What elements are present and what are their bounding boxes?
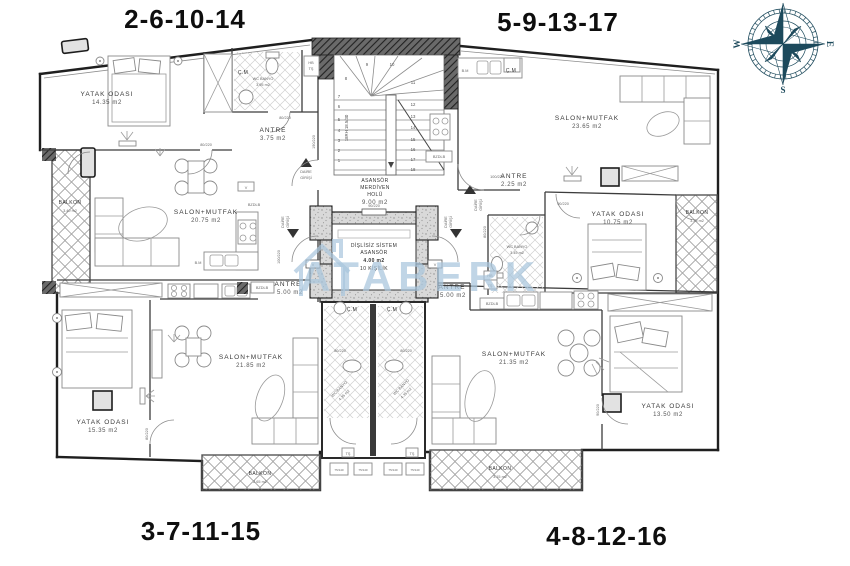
room-label: YATAK ODASI [592, 211, 645, 218]
room-label: SALON+MUTFAK [555, 115, 619, 122]
washing-machine-label: Ç.M [506, 68, 516, 74]
room-label: WC BANYO [507, 245, 528, 249]
room-area: 2.25 m2 [501, 182, 527, 188]
door-size-label: 100/220 [277, 250, 281, 264]
door-arc [150, 420, 174, 444]
room-label: BALKON [249, 471, 272, 477]
stair-spec-label: 18RH 18.5/30 [344, 114, 349, 141]
washing-machine-label: Ç.M [238, 70, 248, 76]
ac-unit-icon [601, 168, 619, 186]
stair-number: 18 [411, 167, 416, 172]
panel-label: 75/140 [388, 468, 398, 472]
floor-plan-drawing: 2-6-10-14 5-9-13-17 3-7-11-15 4-8-12-16 … [0, 0, 850, 566]
shaft-label: BZDLB [486, 302, 499, 306]
room-area: 23.65 m2 [572, 124, 602, 130]
compass-east-label: E [825, 41, 835, 47]
room-label: ANTRE [500, 173, 527, 180]
rug-icon [643, 107, 683, 141]
room-area: 13.50 m2 [653, 412, 683, 418]
stair-number: 10 [390, 62, 395, 67]
room-label: SALON+MUTFAK [219, 354, 283, 361]
entrance-arrow-icon [450, 229, 462, 238]
panel-label: 75/140 [410, 468, 420, 472]
compass-rose-icon: W E S [732, 3, 835, 95]
service-panels: 75/140 75/140 75/140 75/140 [330, 463, 424, 475]
room-area: 3.40 m2 [63, 209, 77, 213]
stair-number: 12 [411, 102, 416, 107]
title-bottom-left: 3-7-11-15 [141, 516, 261, 546]
title-bottom-right: 4-8-12-16 [546, 521, 668, 551]
wall-lamp-icon [140, 388, 155, 404]
wardrobe-icon [204, 54, 232, 112]
floor-plan-page: 2-6-10-14 5-9-13-17 3-7-11-15 4-8-12-16 … [0, 0, 850, 566]
wardrobe-icon [608, 294, 712, 311]
room-label: ANTRE [274, 281, 301, 288]
door-arc [556, 194, 580, 218]
entrance-label: GİRİŞİ [478, 199, 483, 210]
panel-label: 75/140 [358, 468, 368, 472]
washbasin-icon [334, 302, 346, 314]
room-area: 20.75 m2 [191, 218, 221, 224]
dining-set-icon [152, 326, 211, 378]
door-size-label: 80/220 [334, 349, 346, 353]
sofa-icon [95, 198, 179, 266]
washbasin-icon [526, 222, 538, 234]
shaft-label: BZDLB [433, 155, 446, 159]
shaft-label: TŞ [309, 67, 314, 71]
entrance-label: GİRİŞİ [285, 216, 290, 227]
shaft-box [237, 282, 248, 294]
shaft-box [304, 56, 319, 76]
entrance-label: DAİRE [300, 169, 312, 174]
entrance-label: DAİRE [443, 216, 448, 228]
room-area: 3.75 m2 [260, 136, 286, 142]
room-label: YATAK ODASI [81, 91, 134, 98]
entrance-label: DAİRE [473, 199, 478, 211]
room-area: 14.35 m2 [92, 100, 122, 106]
bed-icon [573, 224, 663, 290]
title-top-right: 5-9-13-17 [497, 7, 619, 37]
door-size-label: 90/220 [596, 404, 600, 416]
door-size-label: 80/220 [400, 349, 412, 353]
wall-block [42, 281, 56, 294]
room-area: 3.95 m2 [256, 83, 270, 87]
stair-number: 16 [411, 147, 416, 152]
sink-label: B.M [462, 69, 469, 73]
room-label: YATAK ODASI [642, 403, 695, 410]
room-area: 10.75 m2 [603, 220, 633, 226]
room-label: WC BANYO [253, 77, 274, 81]
vent-label: V [245, 186, 248, 190]
sofa-icon [620, 76, 710, 144]
door-arc [458, 164, 484, 190]
stair-number: 13 [411, 114, 416, 119]
washbasin-icon [239, 90, 253, 104]
watermark-text: ATABERK [300, 253, 541, 300]
door-size-label: 80/220 [483, 226, 487, 238]
room-area: 21.85 m2 [236, 363, 266, 369]
hall-area: 9.00 m2 [362, 200, 388, 206]
shaft-label: TŞ [410, 452, 415, 456]
entrance-arrow-icon [287, 229, 299, 238]
room-area: 3.15 m2 [493, 475, 507, 479]
toilet-icon [343, 360, 361, 372]
rug-icon [460, 367, 501, 424]
door-size-label: 190/220 [312, 135, 316, 149]
shared-bathrooms: TŞ TŞ Ç.M Ç.M WC BANYO 4.35 m2 WC BANYO … [322, 302, 425, 475]
door-size-label: 80/220 [145, 428, 149, 440]
toilet-icon [385, 360, 403, 372]
stair-number: 14 [411, 125, 416, 130]
wall-lamp-icon [119, 131, 136, 146]
room-area: 3.35 m2 [690, 219, 704, 223]
room-label: BALKON [59, 200, 82, 206]
stair-number: 11 [411, 80, 416, 85]
sofa-icon [432, 356, 496, 444]
room-area: 21.35 m2 [499, 360, 529, 366]
washing-machine-label: Ç.M [387, 307, 397, 313]
elevator-label: DİŞLİSİZ SİSTEM [351, 242, 397, 249]
wardrobe-icon [622, 166, 678, 181]
apartment-top-left: V YATAK ODASI 14.35 m2 ANTRE 3.75 m2 WC … [59, 38, 319, 270]
room-label: BALKON [489, 466, 512, 472]
toilet-icon [266, 52, 279, 74]
hall-label: HOLÜ [367, 191, 383, 198]
rug-icon [250, 371, 291, 425]
door-size-label: 90/220 [557, 202, 569, 206]
hall-label: MERDİVEN [360, 184, 390, 191]
hall-labels: ASANSÖR MERDİVEN HOLÜ 9.00 m2 [360, 177, 390, 206]
wardrobe-icon [60, 283, 162, 297]
door-size-label: 80/220 [279, 116, 291, 120]
room-label: ANTRE [259, 127, 286, 134]
shaft-label: TŞ [346, 452, 351, 456]
room-label: BALKON [686, 210, 709, 216]
stair-number: 17 [411, 157, 416, 162]
washing-machine-label: Ç.M [347, 307, 357, 313]
title-top-left: 2-6-10-14 [124, 4, 246, 34]
bed-icon [53, 310, 133, 388]
stair-number: 15 [411, 137, 416, 142]
ac-unit-icon [93, 391, 112, 410]
washbasin-icon [400, 302, 412, 314]
entrance-label: GİRİŞİ [300, 175, 311, 180]
wall-lamp-icon [564, 166, 581, 181]
panel-label: 75/140 [334, 468, 344, 472]
door-size-label: 80/220 [200, 143, 212, 147]
bed-icon [610, 316, 682, 392]
room-area: 15.35 m2 [88, 428, 118, 434]
room-area: 2.65 m2 [253, 480, 267, 484]
door-size-label: 100/220 [490, 175, 504, 179]
shaft-label: BZDLB [248, 203, 261, 207]
shaft-label: BZDLB [256, 286, 269, 290]
compass-west-label: W [732, 40, 742, 49]
entrance-label: DAİRE [280, 216, 285, 228]
apartment-bottom-left: BZDLB ANTRE 5 [53, 236, 319, 484]
sink-label: B.M [195, 261, 202, 265]
ac-unit-icon [603, 394, 621, 412]
hall-label: ASANSÖR [361, 177, 388, 184]
shaft-label: HB [308, 61, 314, 65]
entrance-label: GİRİŞİ [448, 216, 453, 227]
dining-set-icon [155, 148, 217, 195]
elevator-door [362, 209, 386, 215]
room-label: YATAK ODASI [77, 419, 130, 426]
compass-south-label: S [780, 85, 785, 95]
room-label: SALON+MUTFAK [174, 209, 238, 216]
room-label: SALON+MUTFAK [482, 351, 546, 358]
